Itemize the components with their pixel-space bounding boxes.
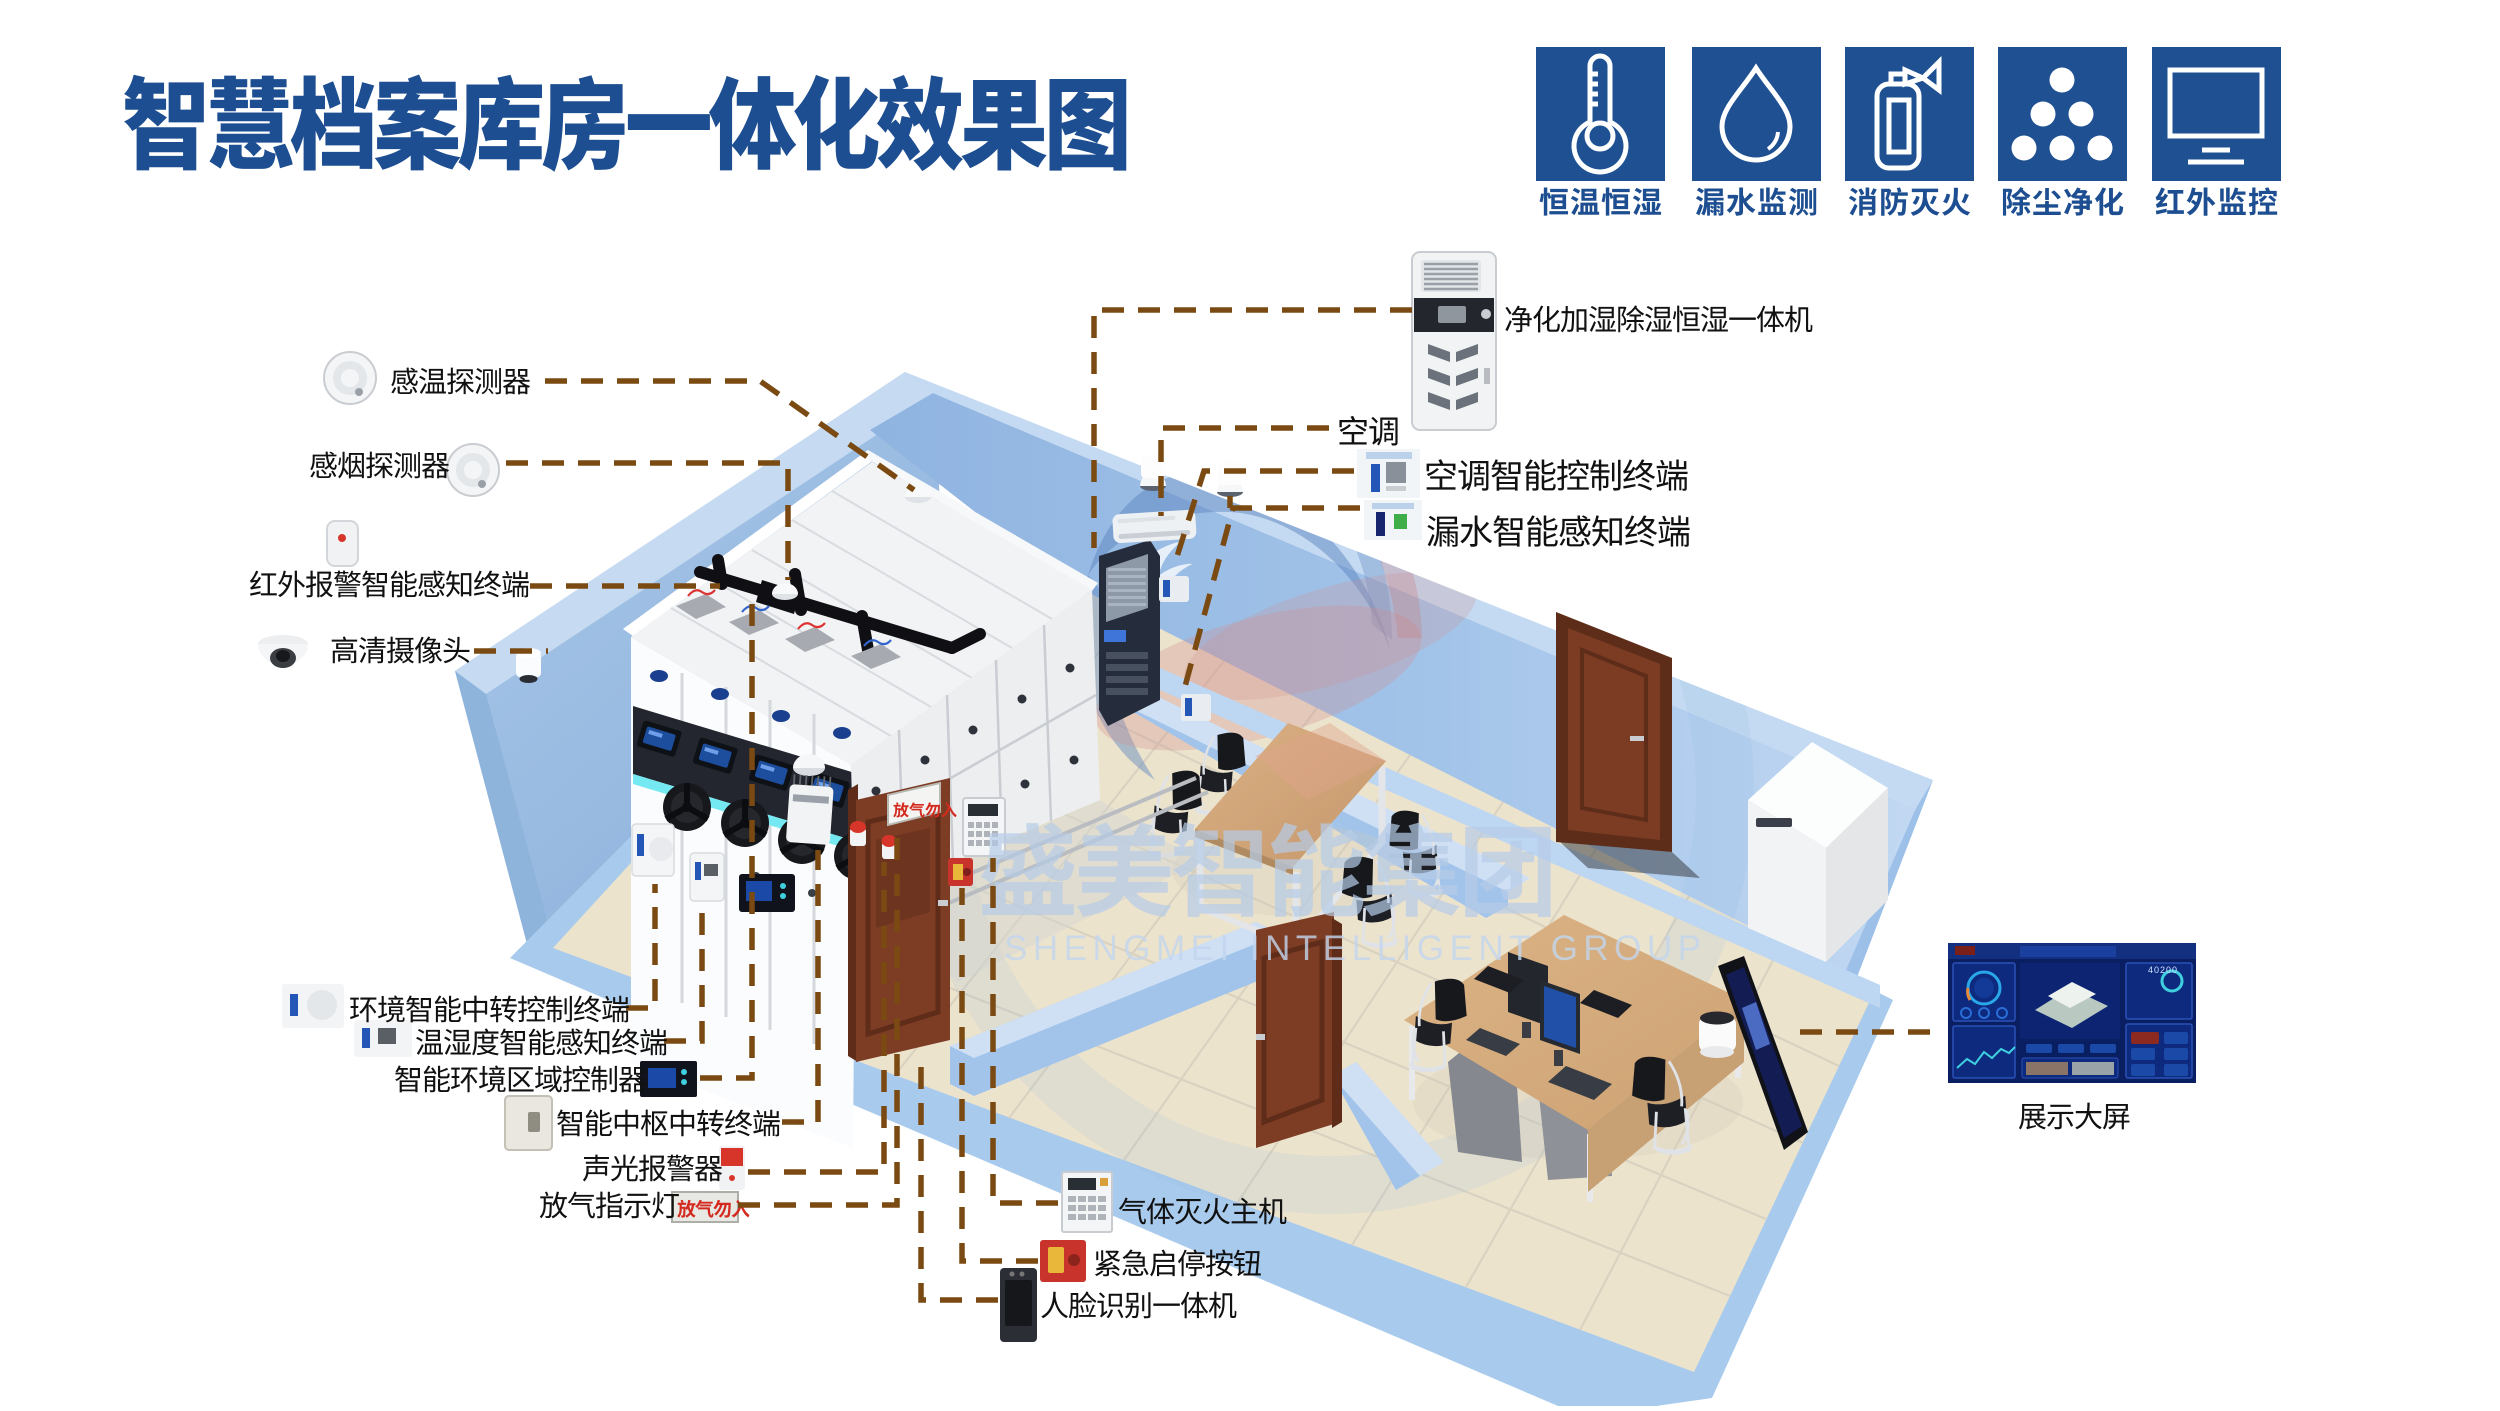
- svg-text:40200: 40200: [2148, 965, 2178, 975]
- svg-text:SHENGMEI INTELLIGENT GROUP: SHENGMEI INTELLIGENT GROUP: [1004, 929, 1706, 968]
